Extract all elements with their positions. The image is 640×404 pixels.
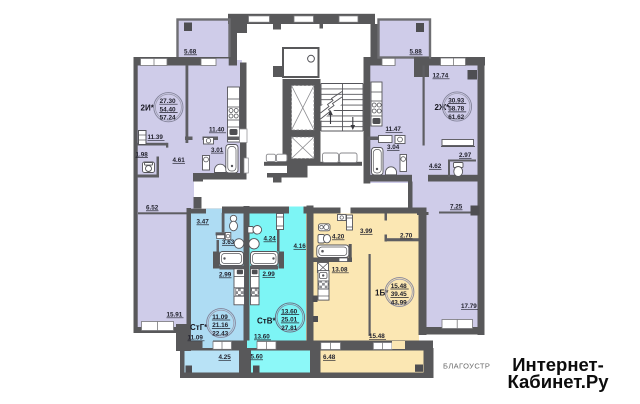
svg-text:27.81: 27.81 xyxy=(281,325,297,332)
svg-text:43.99: 43.99 xyxy=(391,299,407,306)
svg-text:СтВ*: СтВ* xyxy=(257,317,276,326)
svg-text:61.62: 61.62 xyxy=(448,114,464,121)
svg-text:57.24: 57.24 xyxy=(160,115,176,122)
svg-text:2И*: 2И* xyxy=(141,104,155,113)
svg-text:22.43: 22.43 xyxy=(212,330,228,337)
svg-text:СтГ*: СтГ* xyxy=(190,323,208,332)
svg-text:12.74: 12.74 xyxy=(433,73,449,80)
